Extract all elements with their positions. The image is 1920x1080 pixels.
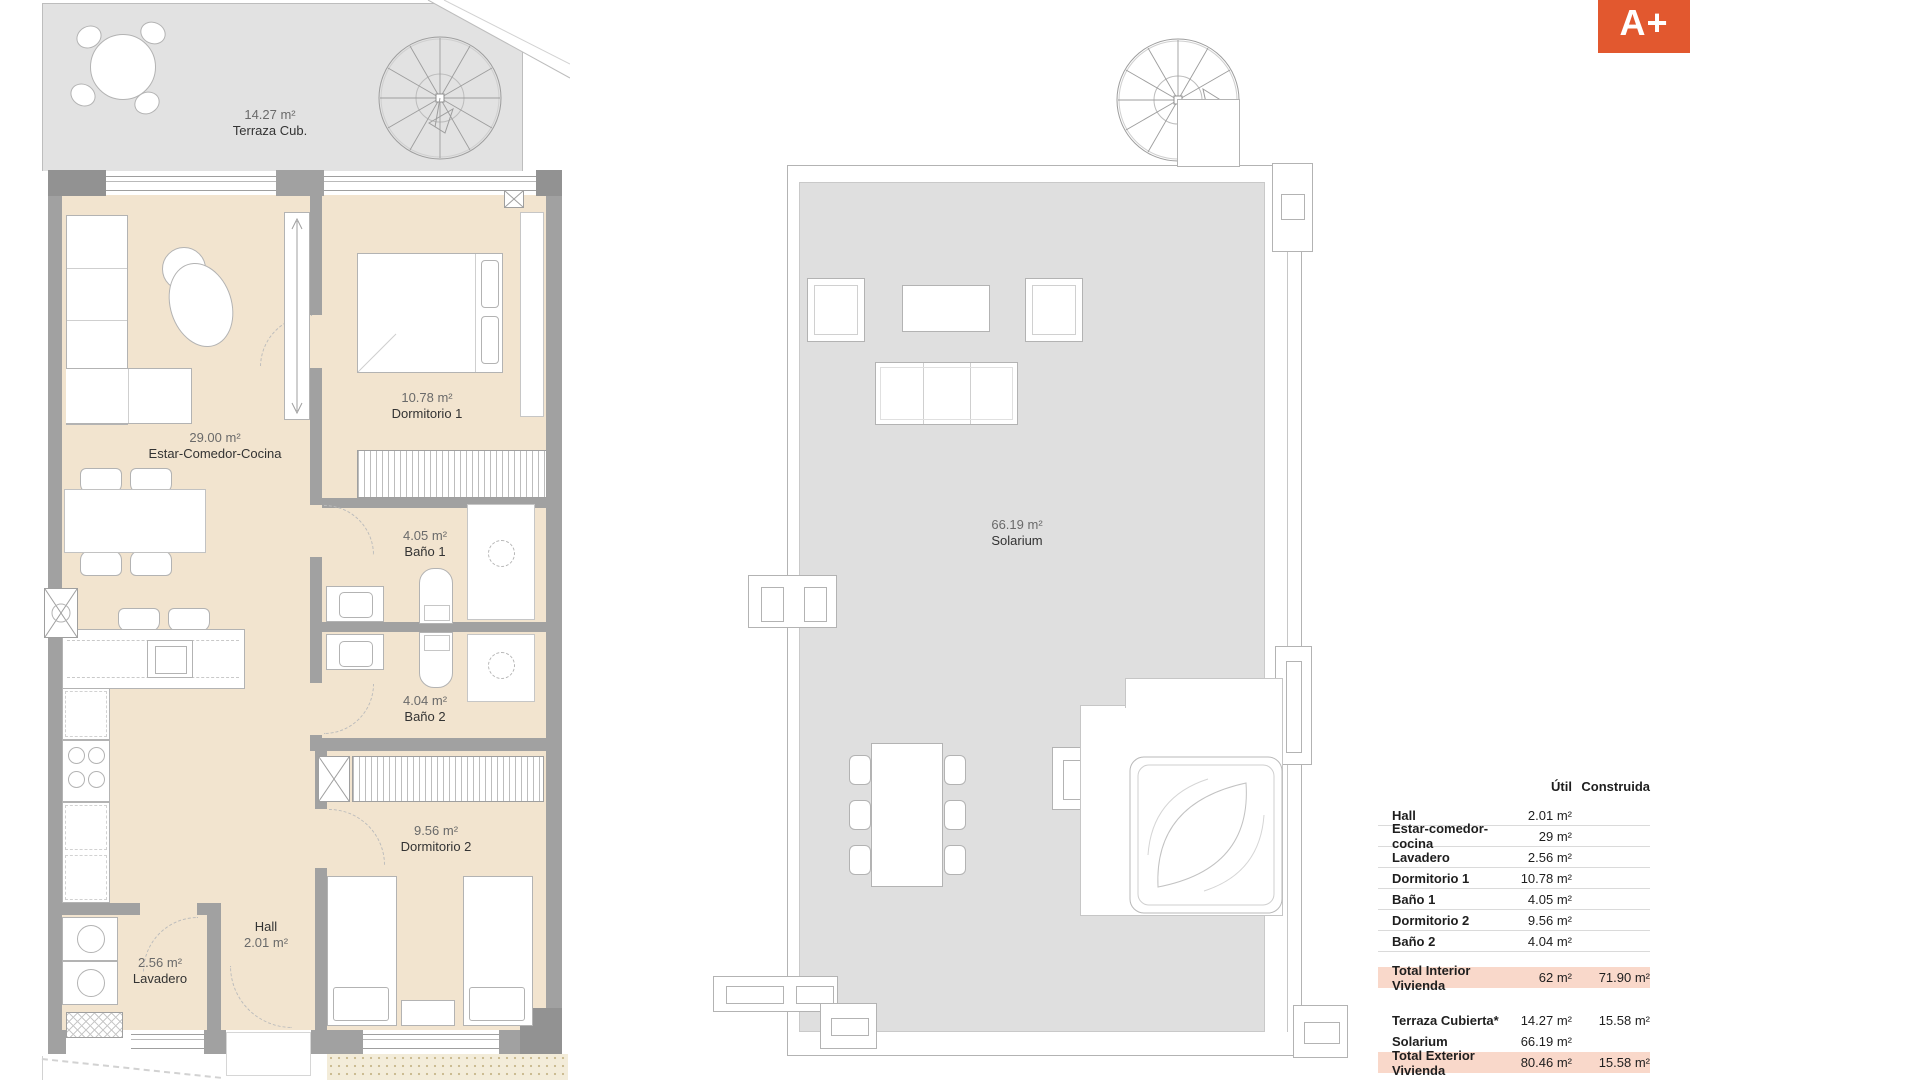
outdoor-chair [849, 800, 871, 830]
outdoor-chair [849, 755, 871, 785]
table-row: Terraza Cubierta* 14.27 m² 15.58 m² [1378, 1010, 1650, 1031]
outdoor-table [902, 285, 990, 332]
table-row: Estar-comedor-cocina 29 m² [1378, 826, 1650, 847]
outdoor-chair [944, 800, 966, 830]
roof-window-box [820, 1003, 877, 1049]
table-row: Baño 2 4.04 m² [1378, 931, 1650, 952]
outdoor-sofa [875, 362, 1018, 425]
outdoor-chair [944, 845, 966, 875]
sun-lounger [807, 278, 865, 342]
table-row: Baño 1 4.05 m² [1378, 889, 1650, 910]
roof-window-box [1293, 1005, 1348, 1058]
col-header-util: Útil [1502, 779, 1572, 805]
table-row: Dormitorio 2 9.56 m² [1378, 910, 1650, 931]
room-label-solarium: 66.19 m² Solarium [991, 517, 1042, 549]
area-table: Útil Construida Hall 2.01 m² Estar-comed… [1378, 779, 1650, 1073]
outdoor-chair [849, 845, 871, 875]
area-table-header: Útil Construida [1378, 779, 1650, 805]
table-row-total-exterior: Total Exterior Vivienda 80.46 m² 15.58 m… [1378, 1052, 1650, 1073]
stair-landing [1177, 99, 1240, 167]
roof-vent-box [1272, 163, 1313, 252]
energy-rating-badge: A+ [1598, 0, 1690, 53]
energy-rating-label: A+ [1619, 2, 1668, 43]
roof-window-box [748, 575, 837, 628]
outdoor-dining-table [871, 743, 943, 887]
col-header-construida: Construida [1572, 779, 1650, 805]
table-row-total-interior: Total Interior Vivienda 62 m² 71.90 m² [1378, 967, 1650, 988]
sun-lounger [1025, 278, 1083, 342]
table-row: Dormitorio 1 10.78 m² [1378, 868, 1650, 889]
jacuzzi-deck-top [1125, 678, 1283, 708]
outdoor-chair [944, 755, 966, 785]
floor-plan-sheet: 14.27 m² Terraza Cub. 29.00 m² Estar-Com… [0, 0, 1920, 1080]
table-row: Lavadero 2.56 m² [1378, 847, 1650, 868]
jacuzzi [1128, 755, 1284, 915]
